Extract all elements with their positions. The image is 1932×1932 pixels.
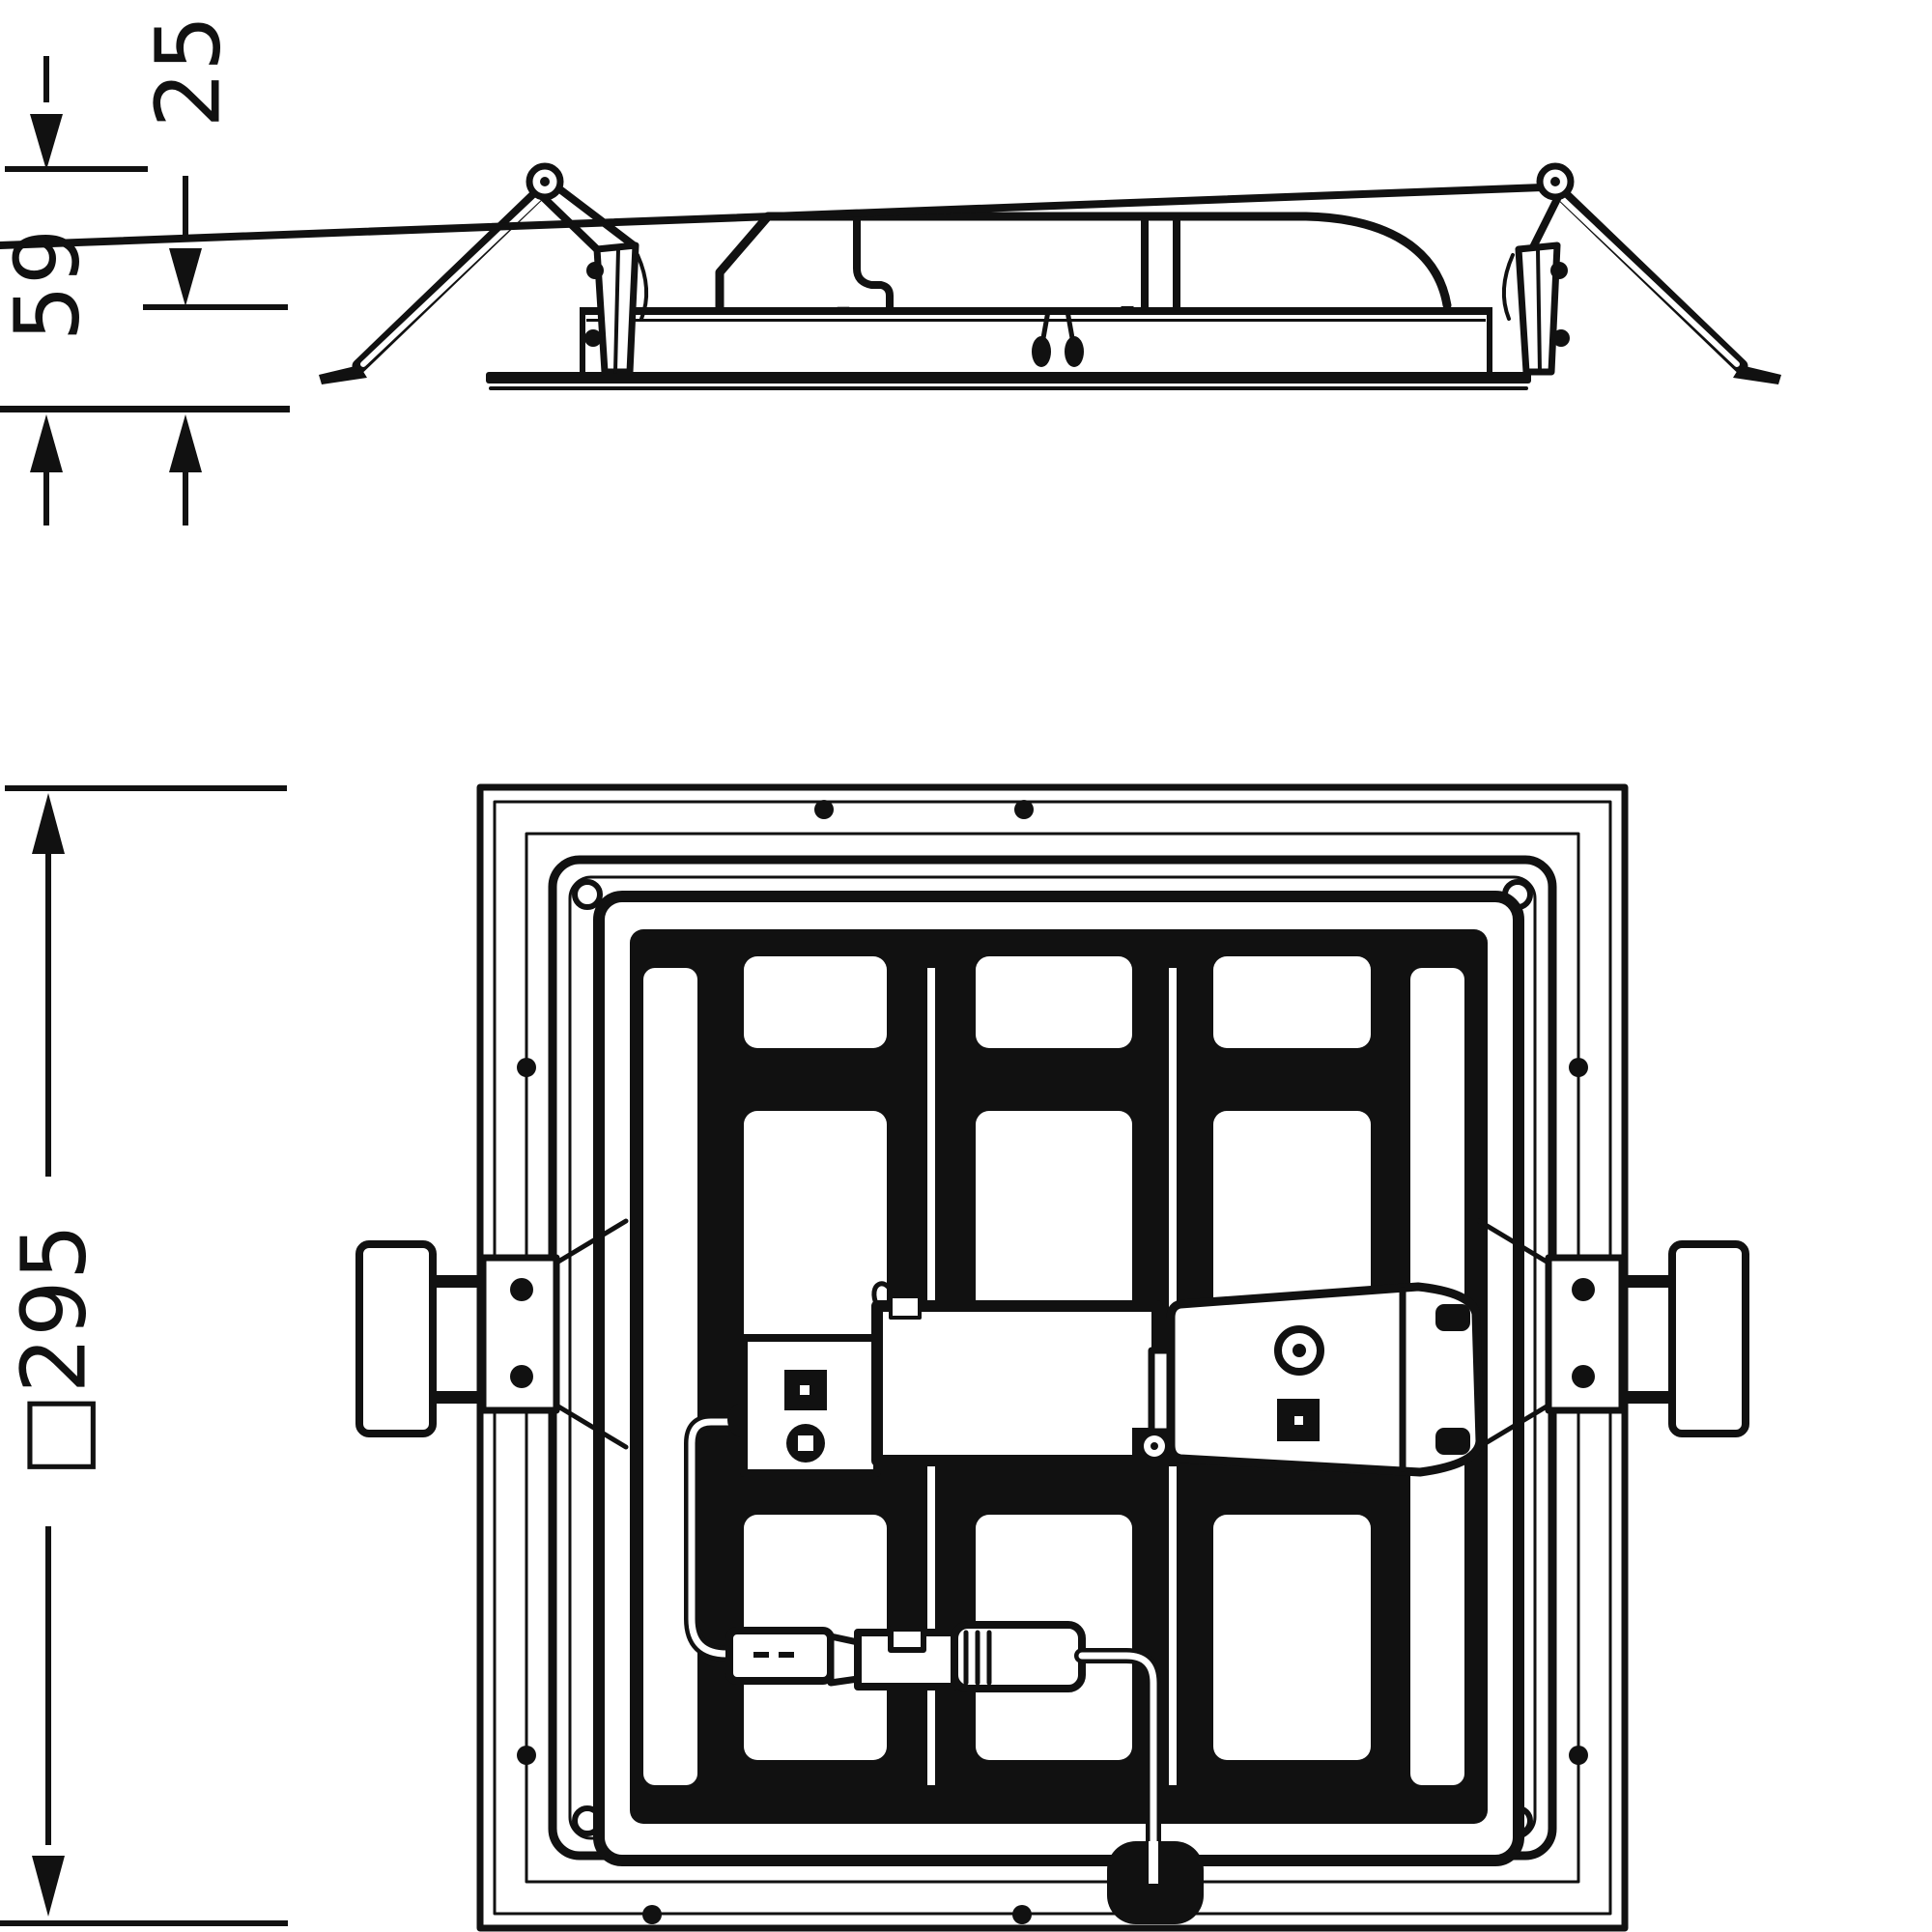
trim-flange: [486, 372, 1531, 390]
dimension-59-label: 59: [0, 228, 99, 341]
spring-clip-left: [319, 166, 646, 384]
dimension-25-label: 25: [136, 14, 240, 128]
side-elevation-view: [0, 166, 1781, 390]
side-view-dimensions: 59 25: [0, 14, 290, 526]
ceiling-reference-line: [0, 406, 290, 412]
clip-handle-right: [1672, 1244, 1746, 1434]
dimension-295: □295: [0, 785, 288, 1926]
driver-box-side: [720, 216, 1447, 307]
rear-plan-view: [359, 787, 1746, 1928]
dimension-295-label: □295: [2, 1224, 105, 1478]
dimension-drawing: 59 25 □295: [0, 0, 1932, 1932]
drawing-canvas: 59 25 □295: [0, 0, 1932, 1932]
clip-handle-left: [359, 1244, 433, 1434]
plug-connector-pair: [729, 1625, 1082, 1689]
connector-block: [1151, 1287, 1480, 1472]
dimension-59: 59: [0, 56, 99, 526]
driver-box-rear: [874, 1284, 1177, 1466]
dimension-25: 25: [136, 14, 240, 526]
mounting-bracket-left: [359, 1221, 626, 1447]
